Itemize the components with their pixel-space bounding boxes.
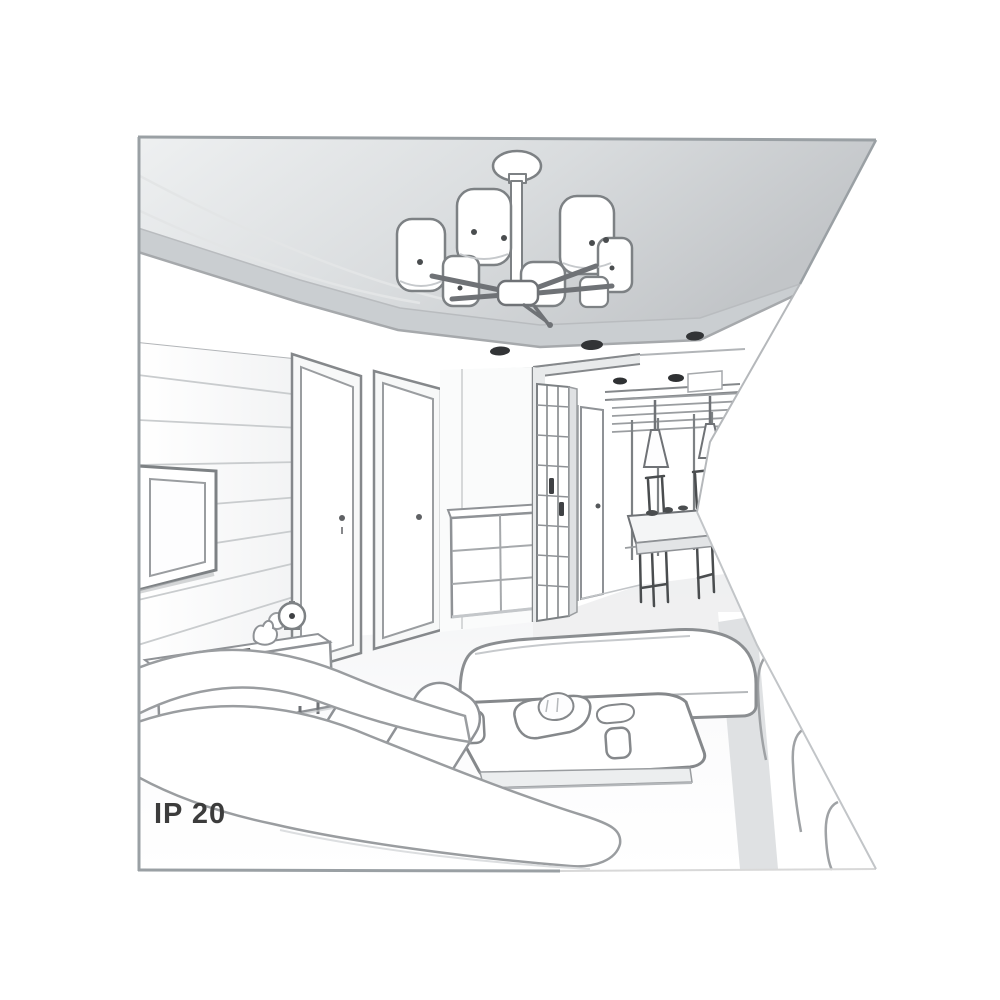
dish — [597, 704, 634, 723]
door-handle — [416, 514, 422, 520]
tv — [138, 466, 216, 592]
product-illustration: IP 20 — [0, 0, 1000, 1000]
wardrobe — [537, 384, 577, 621]
room-sketch — [0, 0, 1000, 1000]
hall-door — [578, 405, 603, 601]
door-handle — [339, 515, 345, 521]
door-right — [374, 371, 441, 649]
cup — [605, 727, 631, 759]
coffee-table — [447, 693, 705, 789]
ip-rating-label: IP 20 — [154, 800, 226, 829]
